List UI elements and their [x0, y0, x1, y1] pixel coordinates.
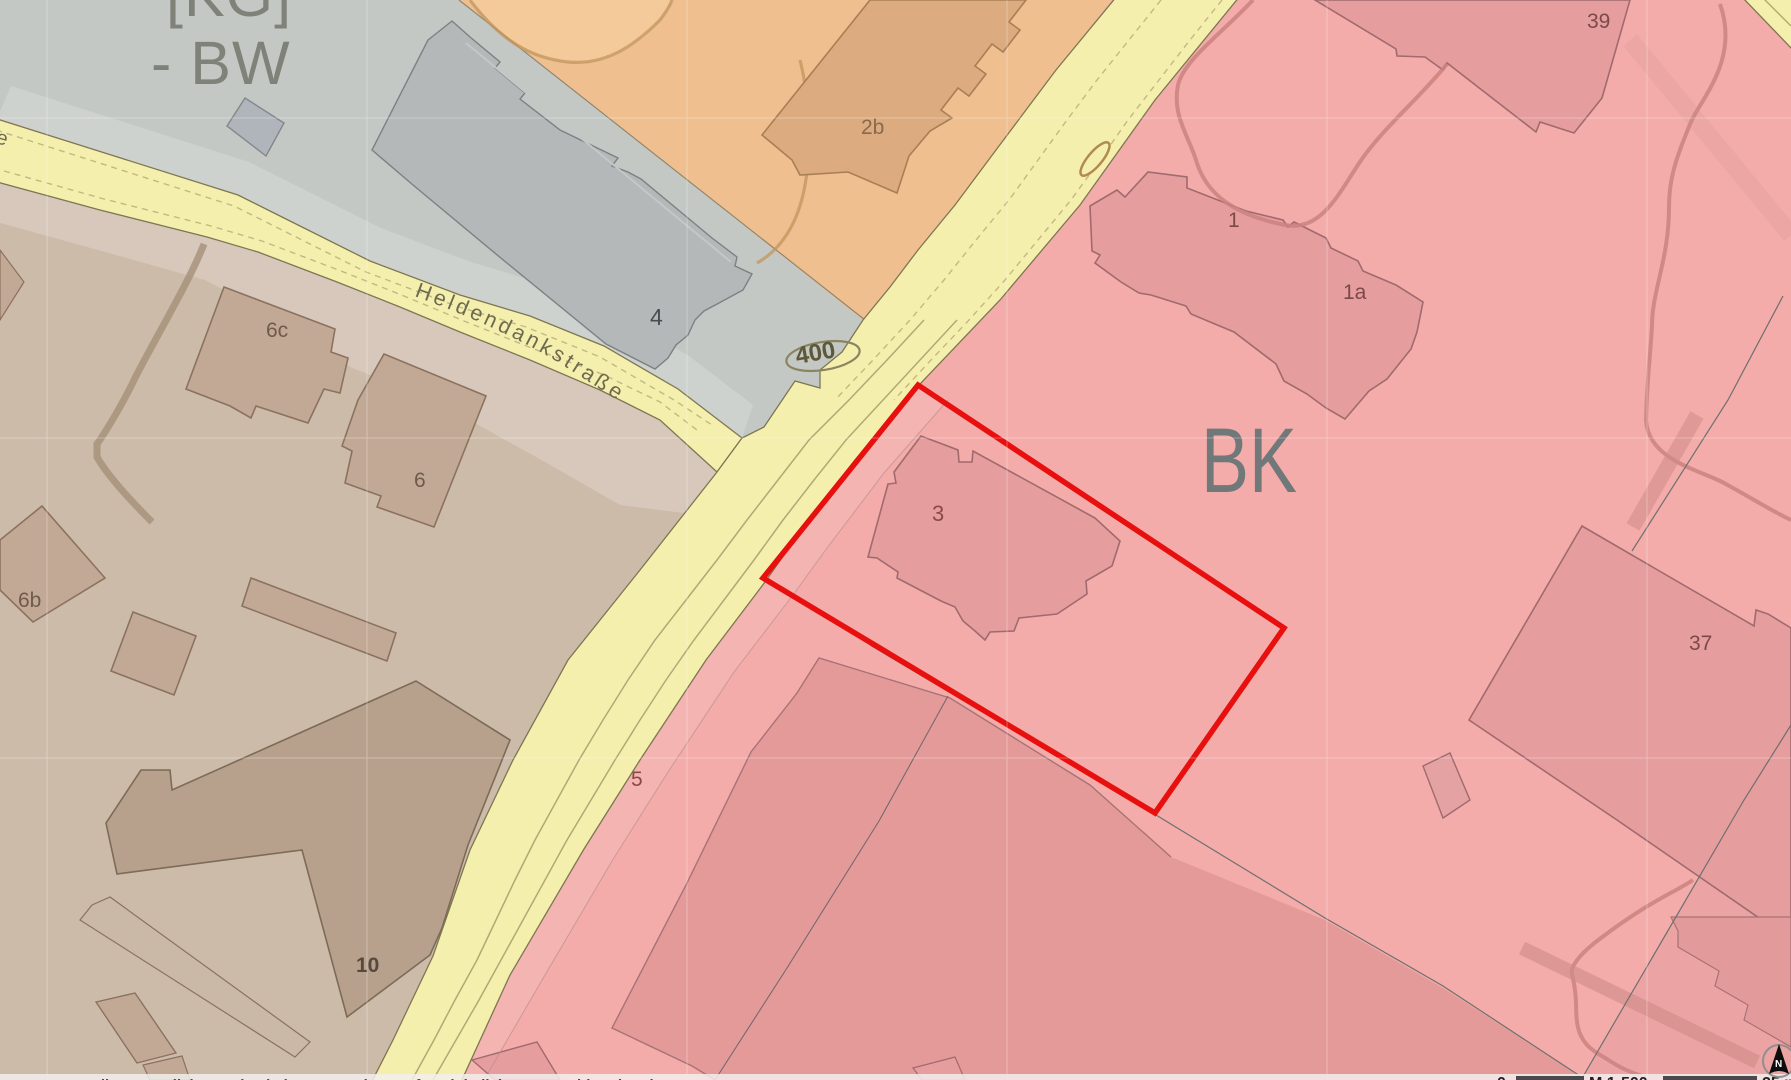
svg-text:5: 5 [631, 768, 643, 791]
svg-text:4: 4 [650, 304, 663, 330]
svg-text:39: 39 [1587, 10, 1610, 33]
svg-text:N: N [1775, 1059, 1782, 1070]
svg-text:37: 37 [1689, 632, 1712, 655]
svg-text:[KG]: [KG] [166, 0, 292, 29]
svg-text:3: 3 [932, 501, 944, 526]
svg-text:10: 10 [356, 954, 379, 977]
svg-text:6b: 6b [18, 589, 41, 612]
svg-text:6: 6 [414, 469, 426, 492]
svg-text:0: 0 [1497, 1075, 1506, 1080]
svg-text:- BW: - BW [151, 29, 291, 97]
svg-text:1a: 1a [1343, 281, 1367, 304]
svg-text:2b: 2b [861, 116, 884, 139]
svg-text:M 1:500: M 1:500 [1589, 1075, 1648, 1080]
svg-text:1: 1 [1228, 209, 1240, 232]
svg-text:6c: 6c [266, 319, 288, 342]
svg-text:BK: BK [1201, 410, 1297, 512]
